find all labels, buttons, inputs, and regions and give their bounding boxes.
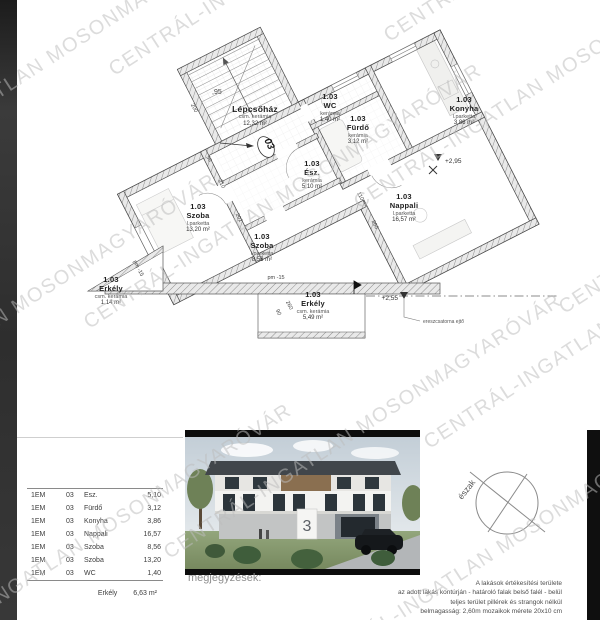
- north-arrow: észak: [440, 440, 570, 570]
- table-row: 1EM03 Szoba8,56: [27, 541, 163, 554]
- table-row: 1EM03 Szoba13,20: [27, 554, 163, 567]
- room-label-konyha: 1.03Konyha l.parketta3,86 m²: [422, 96, 506, 127]
- level-marker-icon: [434, 154, 442, 161]
- room-label-esz: 1.03Ész. kerámia5,10 m²: [270, 160, 354, 191]
- house-number: 3: [303, 518, 312, 535]
- svg-text:pm -15: pm -15: [267, 275, 284, 281]
- person: [259, 529, 262, 539]
- room-label-furdo: 1.03Fürdő kerámia3,12 m²: [316, 115, 400, 146]
- area-table: 1EM03 Esz.5,10 1EM03 Fürdő3,12 1EM03 Kon…: [17, 437, 183, 620]
- room-label-szoba-856: 1.03Szoba l.parketta8,56 m²: [220, 233, 304, 264]
- building: 3: [205, 461, 401, 539]
- notes-section: megjegyzések: A lakások értékesítési ter…: [188, 572, 562, 616]
- area-table-rows: 1EM03 Esz.5,10 1EM03 Fürdő3,12 1EM03 Kon…: [27, 488, 163, 581]
- table-row: 1EM03 Konyha3,86: [27, 515, 163, 528]
- room-label-erkely-bottom: 1.03Erkély csm. kerámia5,49 m²: [271, 291, 355, 322]
- bush: [205, 544, 225, 558]
- table-row: 1EM03 Fürdő3,12: [27, 502, 163, 515]
- light-symbol-icon: [429, 166, 437, 174]
- room-label-lepcsohaz: Lépcsőház csm. kerámia 12,32 m²: [213, 104, 297, 128]
- table-row: 1EM03 Esz.5,10: [27, 489, 163, 502]
- level-upper: +2,95: [445, 158, 462, 165]
- room-label-erkely-left: 1.03Erkély csm. kerámia1,14 m²: [69, 276, 153, 307]
- table-row: 1EM03 Nappali16,57: [27, 528, 163, 541]
- floor-plan-drawing: 210 202 90 200 110 260 ereszcsatorna ejt…: [0, 0, 600, 430]
- right-black-bar: [587, 430, 600, 620]
- room-label-szoba-1320: 1.03Szoba l.parketta13,20 m²: [156, 203, 240, 234]
- cloud: [221, 443, 273, 457]
- north-label: észak: [456, 477, 478, 501]
- level-lower: +2,55: [382, 295, 399, 302]
- dim-left: ,95: [212, 89, 222, 96]
- notes-lines: A lakások értékesítési területe az adott…: [261, 572, 562, 616]
- downspout-note: ereszcsatorna ejtő: [423, 319, 464, 325]
- building-render-scene: 3: [185, 437, 420, 569]
- building-render: 3: [185, 430, 420, 575]
- table-row: 1EM03 WC1,40: [27, 567, 163, 580]
- floorplan-sheet: 210 202 90 200 110 260 ereszcsatorna ejt…: [0, 0, 600, 620]
- balcony-summary: Erkély6,63 m²: [17, 590, 157, 597]
- level-marker-icon: [400, 292, 408, 299]
- room-label-nappali: 1.03Nappali l.parketta16,57 m²: [362, 193, 446, 224]
- left-black-bar: [0, 0, 17, 620]
- notes-heading: megjegyzések:: [188, 572, 261, 616]
